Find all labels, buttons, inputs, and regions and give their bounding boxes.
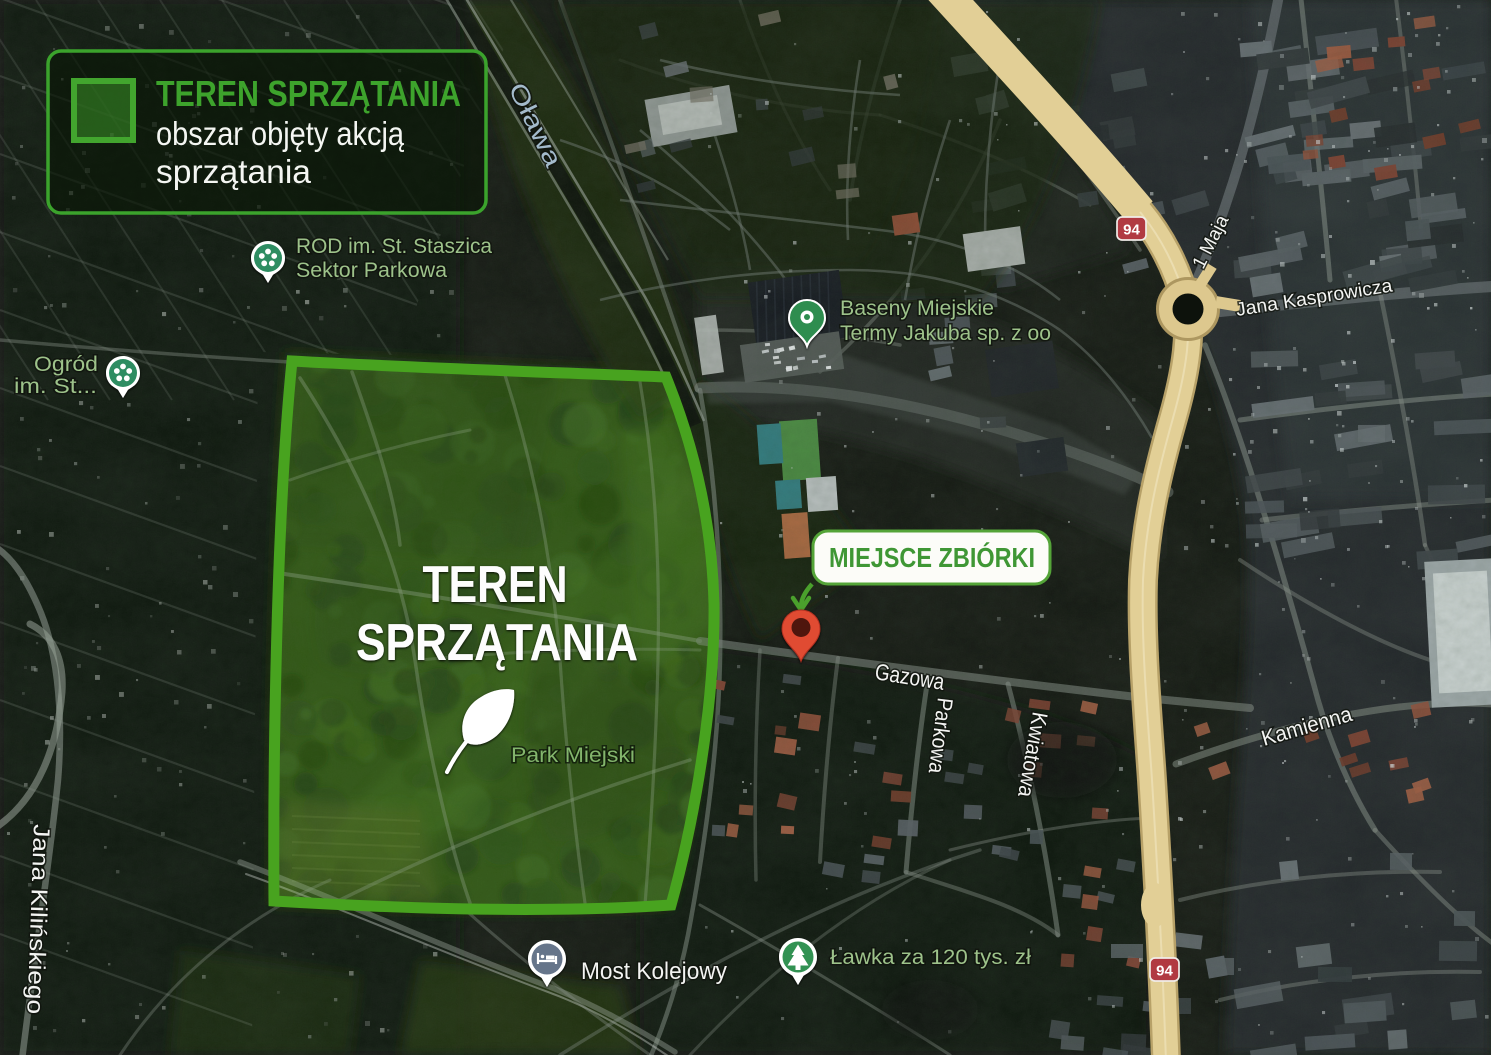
svg-text:Gazowa: Gazowa (873, 658, 946, 695)
svg-text:94: 94 (1156, 963, 1173, 980)
svg-text:TEREN SPRZĄTANIA: TEREN SPRZĄTANIA (156, 73, 461, 114)
svg-text:94: 94 (1123, 222, 1140, 239)
svg-text:Most Kolejowy: Most Kolejowy (581, 958, 727, 985)
svg-text:Park Miejski: Park Miejski (511, 744, 635, 767)
svg-text:Baseny Miejskie: Baseny Miejskie (840, 297, 994, 320)
svg-text:MIEJSCE ZBIÓRKI: MIEJSCE ZBIÓRKI (829, 542, 1035, 573)
svg-text:Oława: Oława (503, 78, 568, 171)
svg-text:Kwiatowa: Kwiatowa (1013, 710, 1053, 800)
svg-text:SPRZĄTANIA: SPRZĄTANIA (356, 614, 638, 672)
svg-text:Kamienna: Kamienna (1258, 701, 1355, 751)
svg-text:Sektor Parkowa: Sektor Parkowa (296, 259, 447, 282)
svg-text:obszar objęty akcją: obszar objęty akcją (156, 115, 405, 152)
svg-text:im. St...: im. St... (14, 375, 97, 398)
svg-text:sprzątania: sprzątania (156, 153, 312, 190)
svg-text:TEREN: TEREN (423, 556, 568, 614)
svg-text:1 Maja: 1 Maja (1189, 212, 1234, 273)
svg-text:Parkowa: Parkowa (924, 696, 958, 775)
svg-text:Jana Kasprowicza: Jana Kasprowicza (1234, 275, 1394, 321)
svg-text:Ogród: Ogród (34, 353, 98, 376)
svg-text:Jana Kilińskiego: Jana Kilińskiego (22, 824, 55, 1015)
svg-text:Termy Jakuba sp. z oo: Termy Jakuba sp. z oo (840, 322, 1051, 345)
svg-text:Ławka za 120 tys. zł: Ławka za 120 tys. zł (830, 946, 1031, 969)
svg-text:ROD im. St. Staszica: ROD im. St. Staszica (296, 235, 492, 258)
